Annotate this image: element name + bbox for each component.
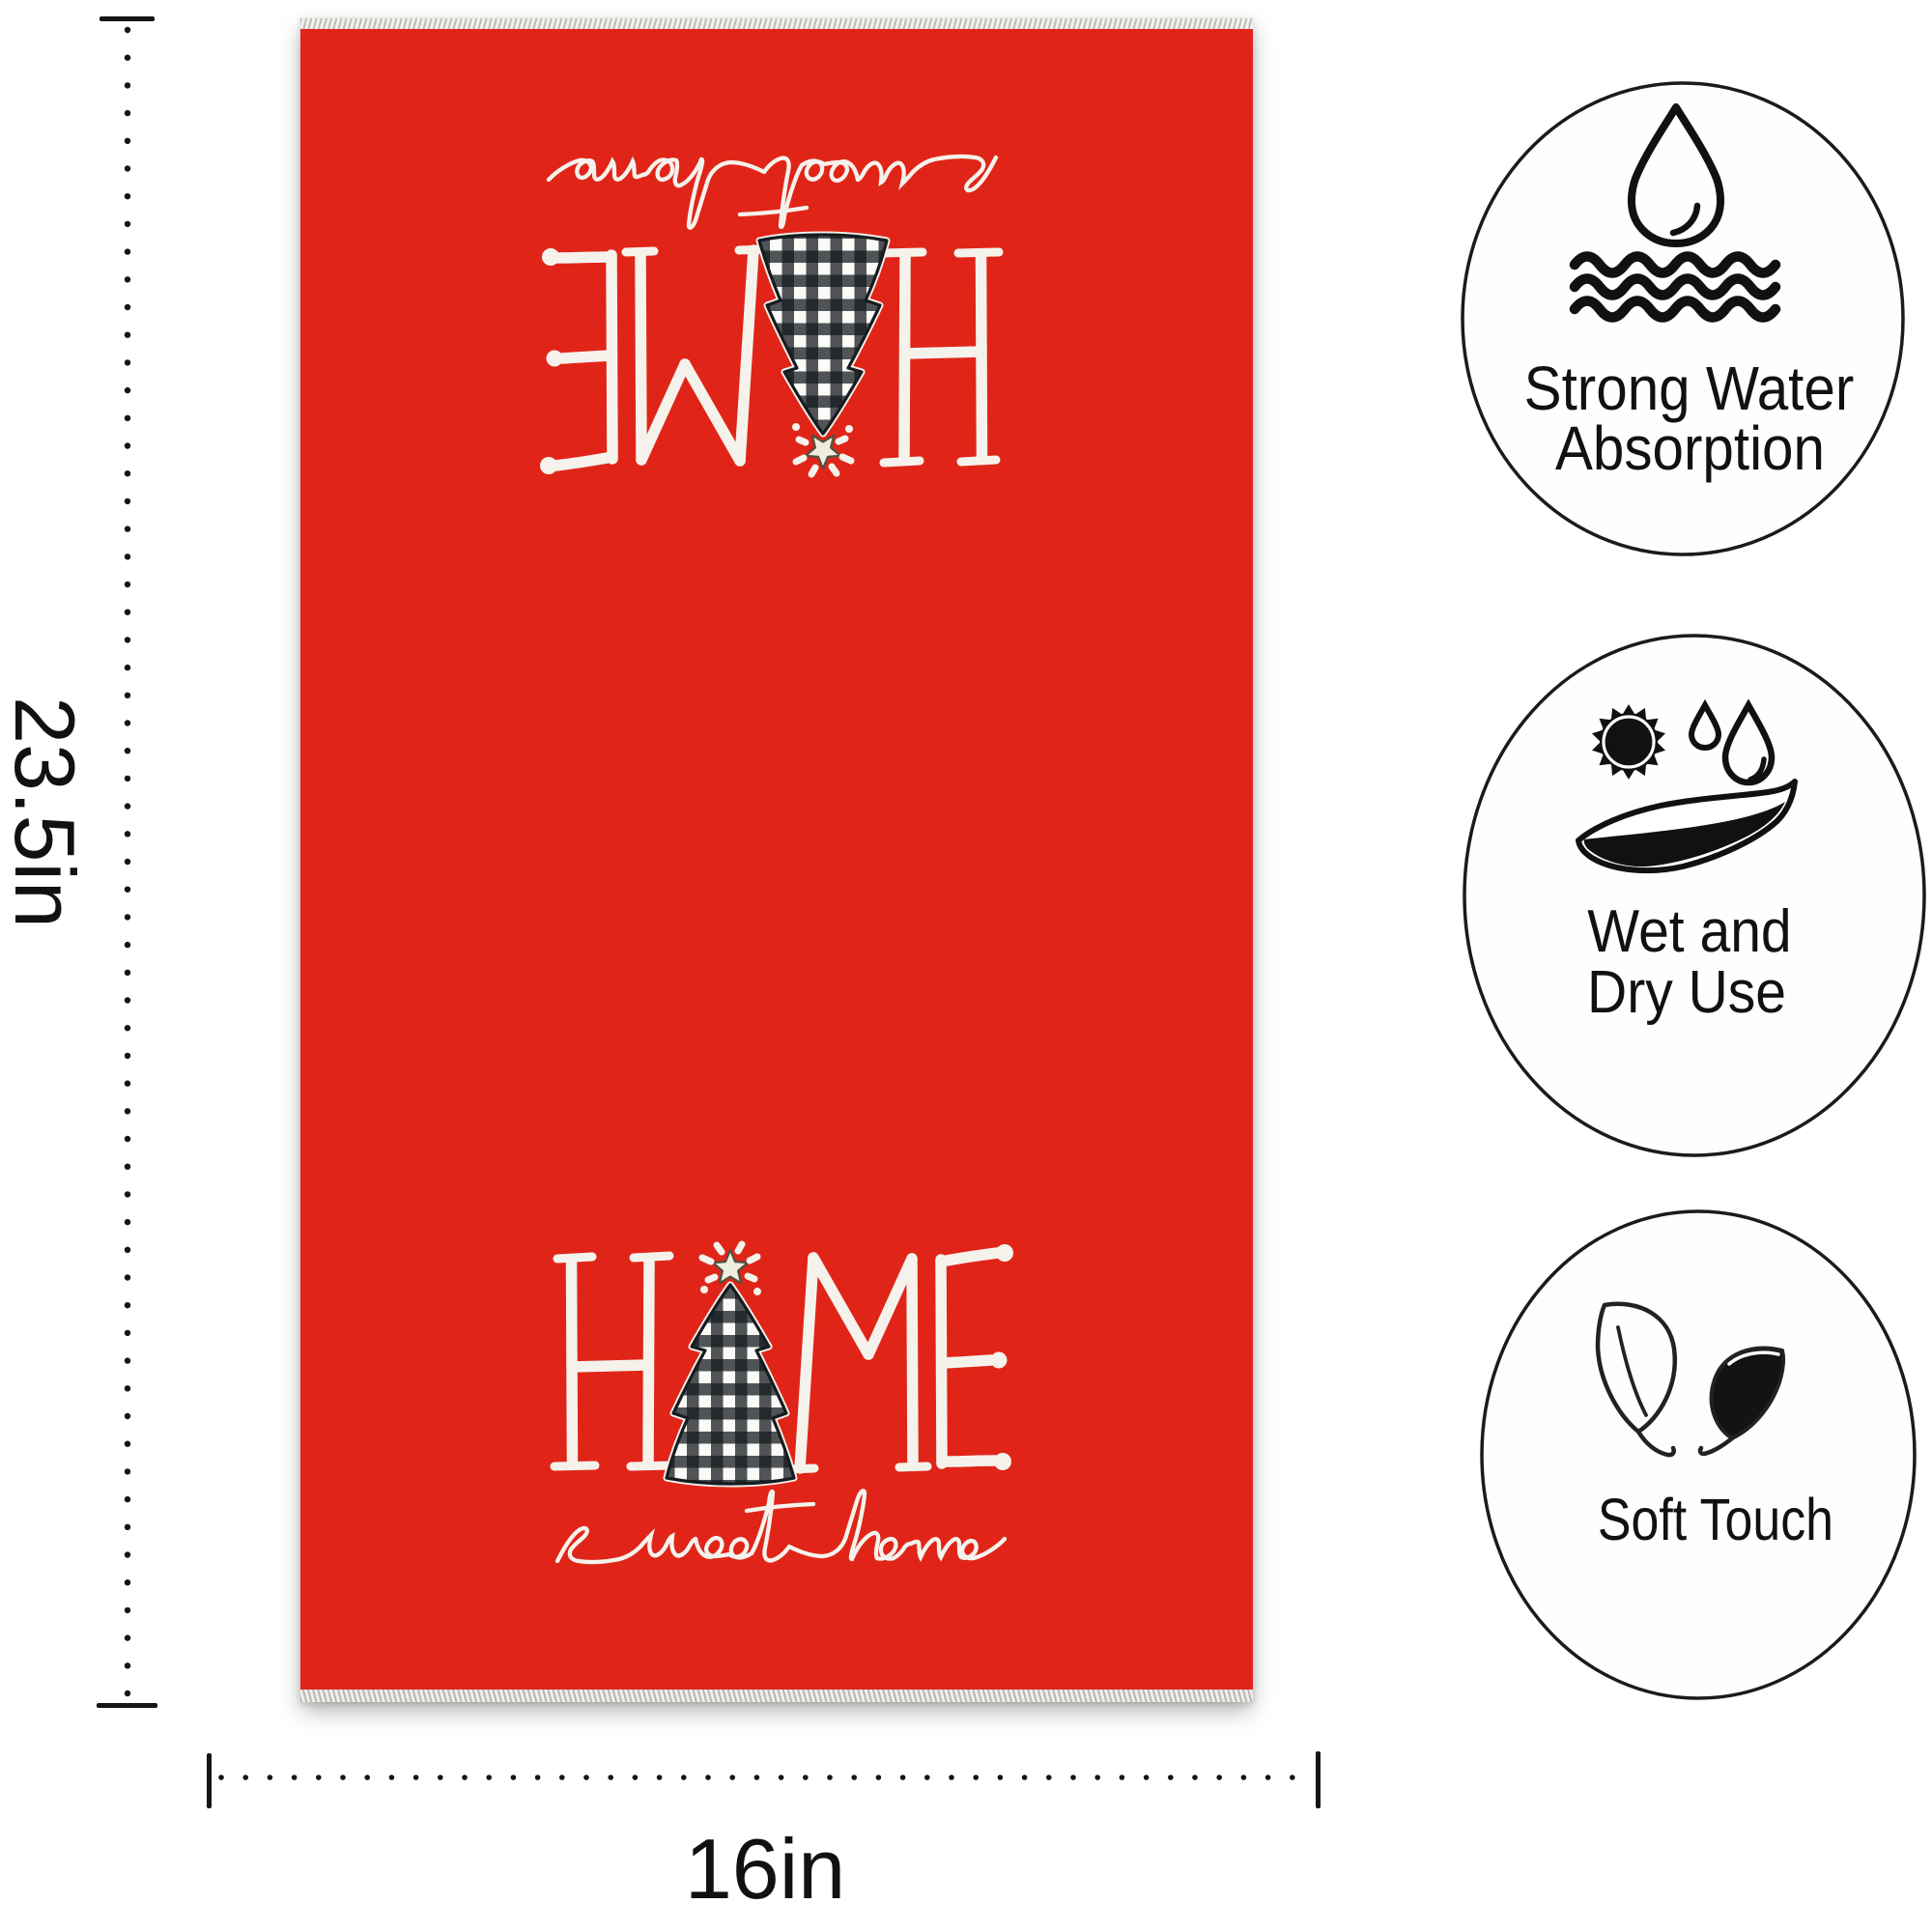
svg-text:Soft Touch: Soft Touch bbox=[1598, 1487, 1833, 1552]
svg-text:Dry Use: Dry Use bbox=[1587, 958, 1786, 1026]
svg-text:Strong Water: Strong Water bbox=[1524, 355, 1855, 423]
svg-text:Wet and: Wet and bbox=[1587, 897, 1791, 965]
svg-text:Absorption: Absorption bbox=[1555, 414, 1825, 483]
